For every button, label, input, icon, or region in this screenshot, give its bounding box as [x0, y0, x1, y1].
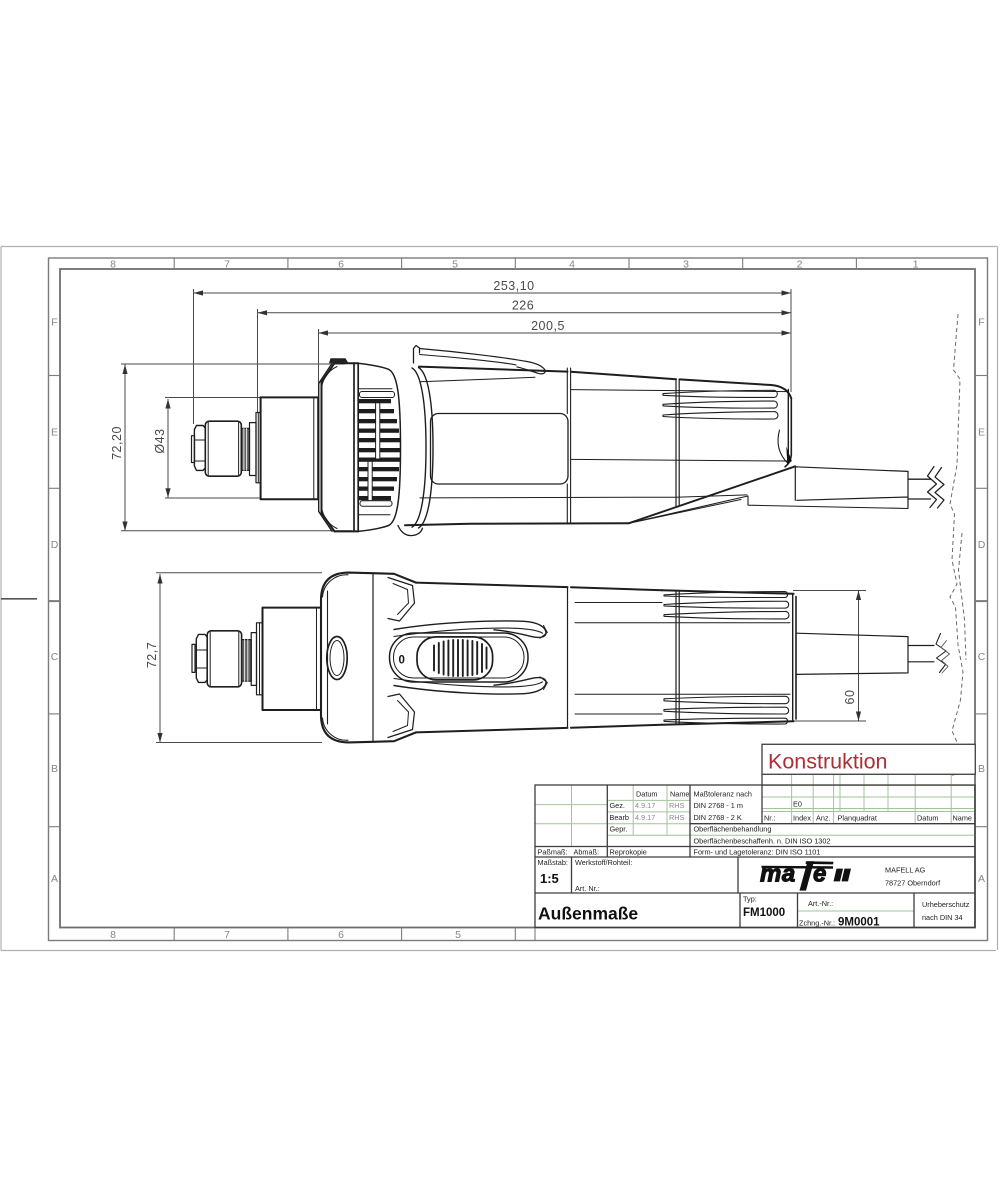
svg-text:Datum: Datum — [917, 814, 939, 823]
svg-text:6: 6 — [338, 259, 344, 271]
svg-text:Urheberschutz: Urheberschutz — [922, 900, 970, 909]
svg-text:Name: Name — [670, 790, 689, 799]
svg-text:Gez.: Gez. — [610, 801, 625, 810]
svg-text:B: B — [978, 763, 985, 775]
svg-text:0: 0 — [399, 655, 405, 667]
svg-text:Maßstab:: Maßstab: — [538, 858, 568, 867]
svg-text:5: 5 — [455, 929, 461, 941]
svg-text:D: D — [978, 539, 986, 551]
svg-text:Werkstoff/Rohteil:: Werkstoff/Rohteil: — [575, 858, 632, 867]
svg-text:A: A — [51, 873, 58, 885]
svg-text:DIN 2768 - 2 K: DIN 2768 - 2 K — [694, 813, 742, 822]
svg-text:226: 226 — [512, 299, 534, 313]
svg-text:C: C — [51, 651, 59, 663]
svg-text:Anz.: Anz. — [816, 814, 831, 823]
svg-text:253,10: 253,10 — [493, 279, 534, 293]
svg-text:9M0001: 9M0001 — [838, 917, 880, 929]
svg-text:4.9.17: 4.9.17 — [635, 813, 655, 822]
svg-text:72,20: 72,20 — [110, 426, 124, 460]
svg-text:7: 7 — [224, 259, 230, 271]
svg-text:1:5: 1:5 — [540, 871, 559, 886]
svg-text:DIN 2768 - 1 m: DIN 2768 - 1 m — [694, 801, 743, 810]
svg-text:Index: Index — [793, 814, 811, 823]
svg-text:72,7: 72,7 — [145, 642, 159, 668]
svg-text:8: 8 — [110, 929, 116, 941]
svg-text:Datum: Datum — [636, 790, 658, 799]
svg-text:8: 8 — [110, 259, 116, 271]
svg-text:Zchng.-Nr.:: Zchng.-Nr.: — [799, 919, 835, 928]
svg-text:Ø43: Ø43 — [153, 428, 167, 453]
svg-text:RHS: RHS — [669, 801, 685, 810]
svg-text:Konstruktion: Konstruktion — [768, 750, 888, 774]
svg-text:5: 5 — [452, 259, 458, 271]
svg-text:Reprokopie: Reprokopie — [610, 848, 647, 857]
svg-text:4: 4 — [569, 259, 575, 271]
svg-text:C: C — [978, 651, 986, 663]
svg-text:Name: Name — [953, 814, 972, 823]
svg-text:6: 6 — [338, 929, 344, 941]
svg-text:nach DIN 34: nach DIN 34 — [922, 913, 963, 922]
svg-text:4.9.17: 4.9.17 — [635, 801, 655, 810]
svg-text:7: 7 — [224, 929, 230, 941]
svg-text:Art. Nr.:: Art. Nr.: — [575, 884, 600, 893]
svg-text:Typ:: Typ: — [743, 895, 757, 904]
svg-text:e: e — [813, 861, 826, 888]
svg-text:78727 Oberndorf: 78727 Oberndorf — [885, 879, 941, 888]
svg-text:MAFELL AG: MAFELL AG — [885, 866, 926, 875]
svg-text:F: F — [978, 317, 984, 329]
svg-text:Paßmaß:: Paßmaß: — [538, 848, 568, 857]
svg-text:Maßtoleranz nach: Maßtoleranz nach — [694, 790, 752, 799]
svg-text:3: 3 — [683, 259, 689, 271]
svg-text:2: 2 — [797, 259, 803, 271]
svg-text:E0: E0 — [793, 800, 802, 809]
svg-text:Außenmaße: Außenmaße — [538, 904, 638, 924]
svg-text:RHS: RHS — [669, 813, 685, 822]
svg-text:F: F — [51, 317, 57, 329]
svg-text:E: E — [51, 427, 58, 439]
svg-text:A: A — [978, 873, 985, 885]
svg-text:1: 1 — [913, 259, 919, 271]
svg-text:Abmaß:: Abmaß: — [574, 848, 600, 857]
svg-text:FM1000: FM1000 — [743, 907, 785, 919]
svg-text:ma: ma — [760, 861, 796, 888]
svg-text:Nr.:: Nr.: — [764, 814, 775, 823]
svg-text:Gepr.: Gepr. — [610, 825, 628, 834]
svg-text:Oberflächenbehandlung: Oberflächenbehandlung — [694, 825, 772, 834]
svg-text:200,5: 200,5 — [531, 319, 565, 333]
svg-text:Form- und Lagetoleranz: DIN IS: Form- und Lagetoleranz: DIN ISO 1101 — [694, 848, 821, 857]
svg-text:Planquadrat: Planquadrat — [838, 814, 877, 823]
svg-text:B: B — [51, 763, 58, 775]
svg-text:Art.-Nr.:: Art.-Nr.: — [808, 899, 833, 908]
svg-text:Oberflächenbeschaffenh. n. DIN: Oberflächenbeschaffenh. n. DIN ISO 1302 — [694, 836, 831, 845]
svg-text:E: E — [978, 427, 985, 439]
svg-text:60: 60 — [843, 690, 857, 705]
svg-text:D: D — [51, 539, 59, 551]
svg-text:Bearb: Bearb — [610, 813, 629, 822]
